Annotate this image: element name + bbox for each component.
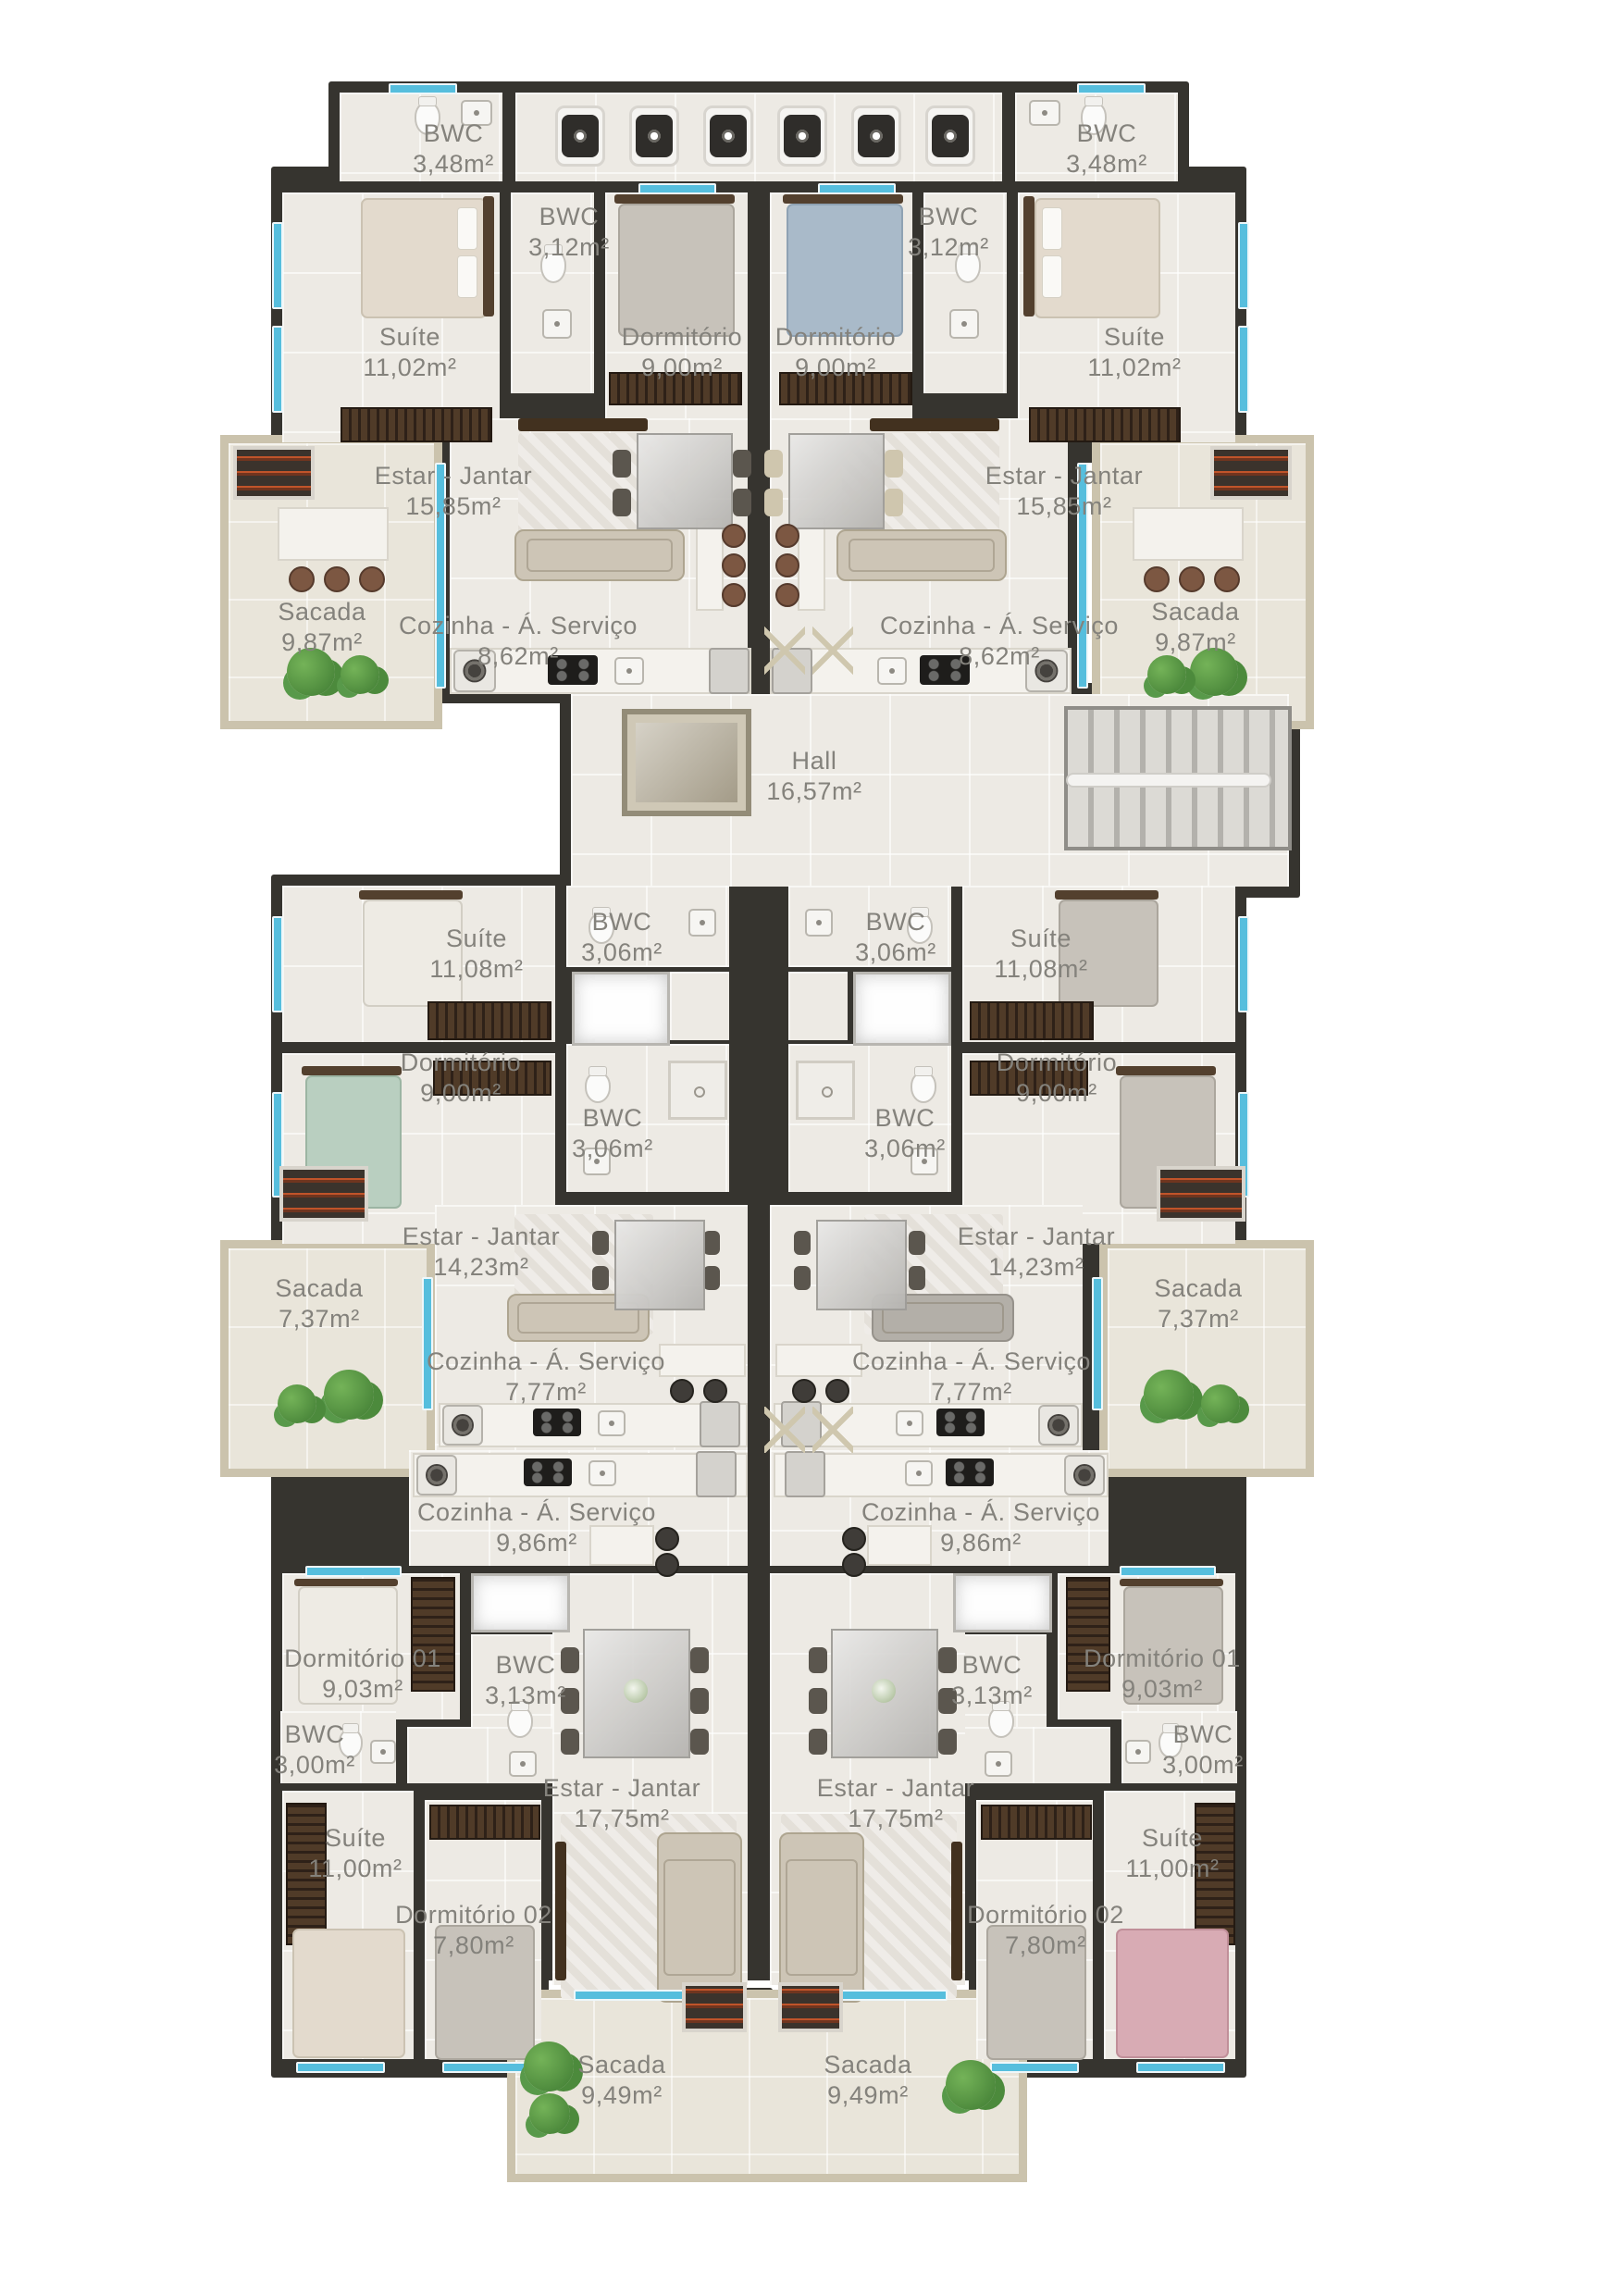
chair [809,1729,827,1755]
room-name: BWC [1162,1719,1244,1750]
chair [909,1231,925,1255]
window [1136,2062,1225,2073]
bed [618,204,735,337]
stove [936,1409,985,1436]
room-area: 9,49m² [824,2080,911,2111]
bed [292,1929,405,2058]
room-name: BWC [908,202,989,232]
window [1238,916,1249,1012]
room-label-bot-left-bwc-social: BWC 3,13m² [485,1650,566,1711]
room-name: BWC [274,1719,355,1750]
room-area: 3,13m² [485,1681,566,1711]
bar-stool [775,524,799,548]
room-name: Suíte [1087,322,1181,353]
door-swing-icon [764,626,805,676]
elevator [622,709,751,816]
room-name: Dormitório 01 [284,1644,441,1674]
room-area: 9,49m² [577,2080,665,2111]
bar-stool [1214,566,1240,592]
room-label-hall: Hall 16,57m² [766,746,861,807]
bed [787,204,903,337]
chair [690,1729,709,1755]
room-area: 7,37m² [275,1304,363,1334]
room-label-mid-right-suite: Suíte 11,08m² [994,924,1087,985]
dining-table [637,433,733,529]
room-area: 11,02m² [363,353,456,383]
bar-stool [1179,566,1205,592]
floor-plan: BWC 3,48m² BWC 3,48m² BWC 3,12m² BWC 3,1… [0,0,1623,2296]
room-name: Suíte [429,924,523,954]
window [638,183,716,194]
room-area: 9,03m² [1084,1674,1241,1705]
window [272,326,283,413]
plant [1144,1370,1194,1420]
barbecue-grill [1210,446,1292,500]
corridor-floor [407,1727,564,1783]
room-name: Sacada [1154,1273,1242,1304]
chair [794,1266,811,1290]
headboard [614,194,735,204]
door-swing-icon [764,1407,805,1453]
bar-stool [722,583,746,607]
sink [1125,1740,1151,1764]
bar-counter [278,507,389,561]
room-label-mid-right-dormitorio: Dormitório 9,00m² [997,1048,1118,1109]
chair [690,1647,709,1673]
room-area: 14,23m² [403,1252,560,1283]
room-area: 7,77m² [427,1377,665,1408]
room-label-bot-right-estar: Estar - Jantar 17,75m² [817,1773,974,1834]
room-label-top-right-estar: Estar - Jantar 15,85m² [985,461,1143,522]
room-area: 9,86m² [861,1528,1100,1558]
room-name: Estar - Jantar [543,1773,700,1804]
barbecue-grill [682,1982,747,2032]
chair [690,1688,709,1714]
chair [809,1647,827,1673]
plant [278,1384,316,1423]
room-name: Cozinha - Á. Serviço [880,611,1119,641]
headboard [1116,1066,1216,1075]
dining-table [614,1220,705,1310]
kitchen-island [659,1344,746,1377]
bar-stool [1144,566,1170,592]
room-area: 9,00m² [401,1078,522,1109]
ac-condenser-icon [777,105,827,167]
room-label-bot-left-dorm01: Dormitório 01 9,03m² [284,1644,441,1705]
dining-table [788,433,885,529]
room-label-top-left-suite-bwc: BWC 3,48m² [413,118,494,180]
room-name: Sacada [275,1273,363,1304]
bar-stool [775,583,799,607]
room-label-top-left-suite: Suíte 11,02m² [363,322,456,383]
room-name: Dormitório 01 [1084,1644,1241,1674]
bed [1116,1929,1229,2058]
room-area: 11,08m² [429,954,523,985]
room-name: Suíte [363,322,456,353]
window [990,2062,1079,2073]
stove [946,1458,994,1486]
room-area: 7,80m² [967,1930,1124,1961]
room-label-top-right-suite-bwc: BWC 3,48m² [1066,118,1147,180]
toilet [507,1706,533,1738]
room-label-top-left-estar: Estar - Jantar 15,85m² [375,461,532,522]
tv-console [951,1842,962,1980]
duct-shaft [853,972,951,1046]
room-name: Dormitório [401,1048,522,1078]
tv-console [518,418,648,431]
room-label-bot-right-sacada: Sacada 9,49m² [824,2050,911,2111]
chair [809,1688,827,1714]
window [1077,83,1146,94]
room-name: Sacada [824,2050,911,2080]
headboard [1023,196,1035,316]
room-label-bot-left-dorm02: Dormitório 02 7,80m² [395,1900,552,1961]
washer [416,1455,457,1496]
chair [764,489,783,516]
door-swing-icon [812,1407,853,1453]
room-name: BWC [485,1650,566,1681]
room-label-mid-right-cozinha: Cozinha - Á. Serviço 7,77m² [852,1347,1091,1408]
room-name: Dormitório [997,1048,1118,1078]
fridge [696,1451,737,1497]
corridor-floor [953,1727,1110,1783]
room-name: Hall [766,746,861,776]
chair [764,450,783,478]
bar-stool [655,1527,679,1551]
dining-table [816,1220,907,1310]
room-label-mid-left-bwc-suite: BWC 3,06m² [581,907,663,968]
room-area: 7,77m² [852,1377,1091,1408]
room-label-bot-right-dorm02: Dormitório 02 7,80m² [967,1900,1124,1961]
chair [794,1231,811,1255]
plant [529,2093,570,2134]
sink [805,909,833,937]
toilet [585,1072,611,1103]
toilet [988,1706,1014,1738]
chair [592,1231,609,1255]
room-area: 9,00m² [622,353,743,383]
stove [533,1409,581,1436]
chair [592,1266,609,1290]
headboard [359,890,463,900]
sink [1029,100,1060,126]
room-area: 9,86m² [417,1528,656,1558]
sofa [657,1832,742,2003]
fridge [700,1401,740,1447]
bar-stool [722,553,746,577]
room-name: Cozinha - Á. Serviço [417,1497,656,1528]
sofa [836,529,1007,581]
ac-condenser-icon [555,105,605,167]
plant [341,655,379,694]
stove [524,1458,572,1486]
pillow [1042,207,1062,250]
room-name: Dormitório 02 [967,1900,1124,1930]
room-label-top-right-cozinha: Cozinha - Á. Serviço 8,62m² [880,611,1119,672]
barbecue-grill [1157,1166,1245,1222]
window [1238,222,1249,309]
washer [442,1405,483,1446]
bar-stool [655,1553,679,1577]
shower [668,1061,727,1120]
room-name: Suíte [994,924,1087,954]
shower [796,1061,855,1120]
room-area: 8,62m² [880,641,1119,672]
wardrobe [341,407,492,442]
room-area: 8,62m² [399,641,638,672]
bar-stool [670,1379,694,1403]
room-label-bot-left-bwc-suite: BWC 3,00m² [274,1719,355,1781]
room-name: Sacada [577,2050,665,2080]
room-name: Cozinha - Á. Serviço [852,1347,1091,1377]
room-label-mid-right-bwc-social: BWC 3,06m² [864,1103,946,1164]
pillow [1042,255,1062,298]
chair [703,1231,720,1255]
chair [909,1266,925,1290]
headboard [483,196,494,316]
headboard [294,1579,398,1586]
bar-stool [775,553,799,577]
room-name: Dormitório [622,322,743,353]
headboard [1120,1579,1223,1586]
sink [985,1751,1012,1777]
room-label-mid-left-sacada: Sacada 7,37m² [275,1273,363,1334]
window [1092,1277,1103,1410]
washer [1038,1405,1079,1446]
pillow [457,255,477,298]
room-label-mid-right-sacada: Sacada 7,37m² [1154,1273,1242,1334]
fridge [709,648,750,694]
kitchen-island [775,1344,862,1377]
sofa [514,529,685,581]
bar-stool [359,566,385,592]
washer [1064,1455,1105,1496]
room-name: BWC [572,1103,653,1134]
room-area: 7,37m² [1154,1304,1242,1334]
room-name: Suíte [1125,1823,1219,1854]
barbecue-grill [778,1982,843,2032]
room-floor [670,972,729,1040]
plant [1147,655,1186,694]
room-name: Sacada [1151,597,1239,627]
tv-console [870,418,999,431]
sink [896,1410,923,1436]
flower-centerpiece [872,1679,896,1703]
room-area: 17,75m² [543,1804,700,1834]
room-name: Estar - Jantar [403,1222,560,1252]
room-name: BWC [951,1650,1033,1681]
barbecue-grill [279,1166,368,1222]
ac-condenser-icon [629,105,679,167]
room-label-top-left-bwc: BWC 3,12m² [528,202,610,263]
room-area: 11,02m² [1087,353,1181,383]
room-area: 3,00m² [274,1750,355,1781]
bar-stool [324,566,350,592]
room-name: Dormitório 02 [395,1900,552,1930]
room-label-mid-left-cozinha: Cozinha - Á. Serviço 7,77m² [427,1347,665,1408]
room-label-mid-left-bwc-social: BWC 3,06m² [572,1103,653,1164]
room-area: 9,00m² [997,1078,1118,1109]
room-area: 3,06m² [864,1134,946,1164]
room-name: Estar - Jantar [375,461,532,491]
window [1120,1566,1216,1577]
chair [733,489,751,516]
room-label-top-right-suite: Suíte 11,02m² [1087,322,1181,383]
room-name: Estar - Jantar [817,1773,974,1804]
room-area: 15,85m² [985,491,1143,522]
room-area: 3,12m² [908,232,989,263]
sink [509,1751,537,1777]
bar-counter [798,518,825,611]
chair [703,1266,720,1290]
headboard [783,194,903,204]
room-label-bot-left-estar: Estar - Jantar 17,75m² [543,1773,700,1834]
wardrobe [429,1805,540,1840]
chair [613,450,631,478]
barbecue-grill [233,446,315,500]
room-area: 11,00m² [308,1854,402,1884]
room-label-mid-right-bwc-suite: BWC 3,06m² [855,907,936,968]
fridge [785,1451,825,1497]
bar-stool [289,566,315,592]
wardrobe [981,1805,1092,1840]
room-name: BWC [413,118,494,149]
tv-console [555,1842,566,1980]
sink [905,1460,933,1486]
sink [688,909,716,937]
room-name: Dormitório [775,322,897,353]
flower-centerpiece [624,1679,648,1703]
room-label-top-left-dormitorio: Dormitório 9,00m² [622,322,743,383]
room-label-top-left-sacada: Sacada 9,87m² [278,597,365,658]
sink [949,309,979,339]
room-area: 3,00m² [1162,1750,1244,1781]
window [442,2062,531,2073]
window [389,83,457,94]
plant [324,1370,374,1420]
room-label-top-right-sacada: Sacada 9,87m² [1151,597,1239,658]
toilet [911,1072,936,1103]
room-area: 9,03m² [284,1674,441,1705]
room-area: 3,12m² [528,232,610,263]
room-label-mid-right-estar: Estar - Jantar 14,23m² [958,1222,1115,1283]
room-name: Estar - Jantar [958,1222,1115,1252]
room-label-mid-left-estar: Estar - Jantar 14,23m² [403,1222,560,1283]
room-area: 11,08m² [994,954,1087,985]
wardrobe [427,1001,551,1040]
room-area: 9,87m² [278,627,365,658]
window [305,1566,402,1577]
room-label-bot-right-suite: Suíte 11,00m² [1125,1823,1219,1884]
room-area: 9,87m² [1151,627,1239,658]
room-area: 9,00m² [775,353,897,383]
room-label-bot-right-bwc-suite: BWC 3,00m² [1162,1719,1244,1781]
room-name: BWC [581,907,663,937]
chair [733,450,751,478]
sink [370,1740,396,1764]
duct-shaft [572,972,670,1046]
duct-shaft [471,1573,570,1632]
bar-counter [696,518,724,611]
room-area: 3,48m² [413,149,494,180]
room-label-top-right-dormitorio: Dormitório 9,00m² [775,322,897,383]
room-area: 7,80m² [395,1930,552,1961]
plant [524,2042,574,2091]
room-label-top-left-cozinha: Cozinha - Á. Serviço 8,62m² [399,611,638,672]
room-label-bot-left-sacada: Sacada 9,49m² [577,2050,665,2111]
room-name: Cozinha - Á. Serviço [861,1497,1100,1528]
room-label-mid-left-suite: Suíte 11,08m² [429,924,523,985]
room-label-bot-right-dorm01: Dormitório 01 9,03m² [1084,1644,1241,1705]
ac-condenser-icon [851,105,901,167]
room-area: 3,48m² [1066,149,1147,180]
chair [613,489,631,516]
ac-condenser-icon [703,105,753,167]
room-label-top-right-bwc: BWC 3,12m² [908,202,989,263]
chair [938,1729,957,1755]
room-name: Estar - Jantar [985,461,1143,491]
room-area: 11,00m² [1125,1854,1219,1884]
duct-shaft [953,1573,1052,1632]
chair [885,450,903,478]
room-area: 14,23m² [958,1252,1115,1283]
room-label-bot-left-suite: Suíte 11,00m² [308,1823,402,1884]
room-name: BWC [864,1103,946,1134]
sink [542,309,572,339]
bar-stool [825,1379,849,1403]
chair [885,489,903,516]
staircase [1064,706,1292,850]
room-name: Suíte [308,1823,402,1854]
room-label-mid-left-dormitorio: Dormitório 9,00m² [401,1048,522,1109]
chair [561,1729,579,1755]
bar-stool [722,524,746,548]
room-area: 3,13m² [951,1681,1033,1711]
room-label-bot-right-bwc-social: BWC 3,13m² [951,1650,1033,1711]
room-area: 17,75m² [817,1804,974,1834]
room-area: 15,85m² [375,491,532,522]
room-area: 16,57m² [766,776,861,807]
room-area: 3,06m² [572,1134,653,1164]
headboard [302,1066,402,1075]
room-name: BWC [1066,118,1147,149]
sink [588,1460,616,1486]
door-swing-icon [812,626,853,676]
wardrobe [970,1001,1094,1040]
room-name: BWC [855,907,936,937]
bar-stool [703,1379,727,1403]
plant [946,2060,996,2110]
window [296,2062,385,2073]
plant [1201,1384,1240,1423]
window [818,183,896,194]
sofa [779,1832,864,2003]
room-name: BWC [528,202,610,232]
room-label-bot-left-cozinha: Cozinha - Á. Serviço 9,86m² [417,1497,656,1558]
wardrobe [1029,407,1181,442]
sink [598,1410,626,1436]
bar-counter [1133,507,1244,561]
room-name: Sacada [278,597,365,627]
ac-condenser-icon [925,105,975,167]
pillow [457,207,477,250]
room-label-bot-right-cozinha: Cozinha - Á. Serviço 9,86m² [861,1497,1100,1558]
bar-stool [792,1379,816,1403]
room-area: 3,06m² [581,937,663,968]
window [272,916,283,1012]
window [272,222,283,309]
room-name: Cozinha - Á. Serviço [427,1347,665,1377]
